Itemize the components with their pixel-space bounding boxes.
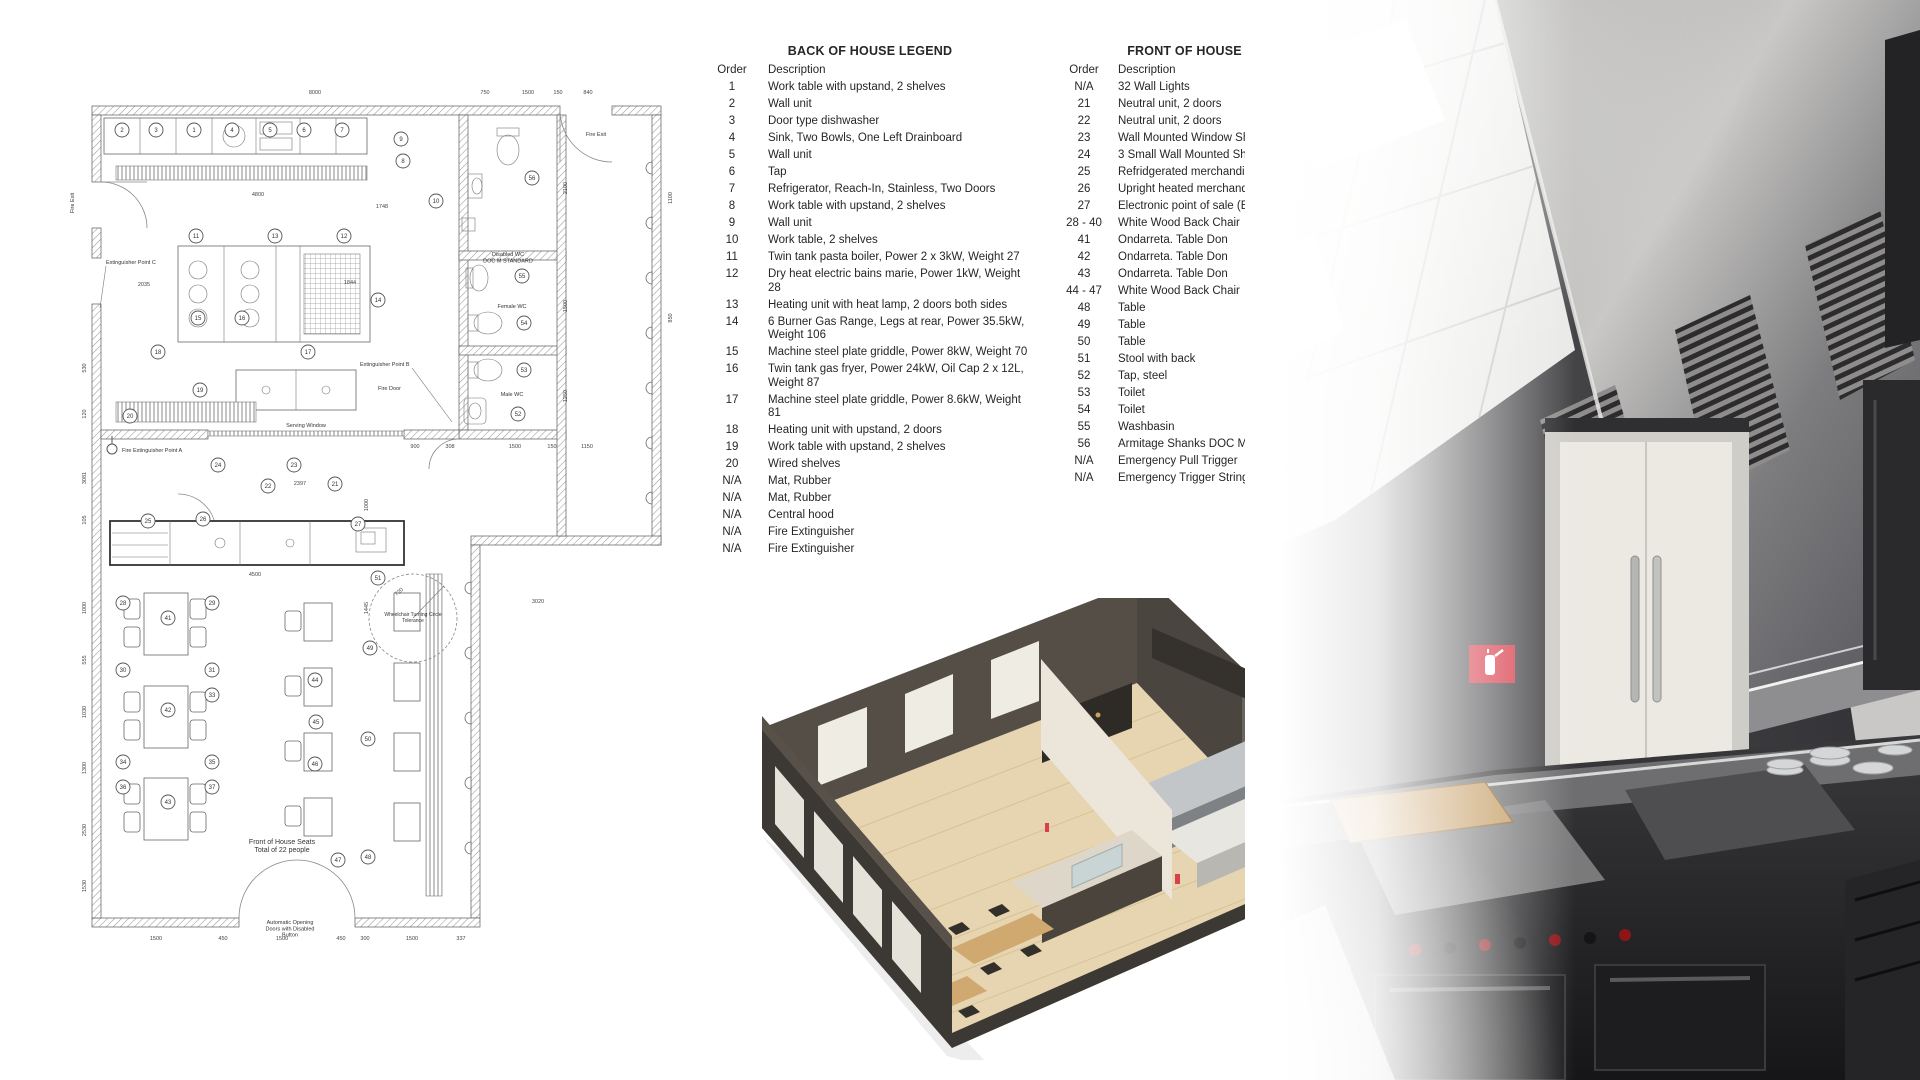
plan-dimension: 120 [82,409,88,418]
plan-item-number: 55 [515,269,529,283]
legend-row-description: Mat, Rubber [768,475,1036,489]
legend-rows: 1Work table with upstand, 2 shelves2Wall… [700,81,1040,557]
legend-row-order: 12 [700,268,764,295]
legend-row-order: 10 [700,234,764,248]
svg-text:54: 54 [521,321,528,327]
legend-row: N/AFire Extinguisher [700,526,1040,540]
legend-row-description: 6 Burner Gas Range, Legs at rear, Power … [768,316,1036,343]
legend-row: 11Twin tank pasta boiler, Power 2 x 3kW,… [700,251,1040,265]
plan-item-number: 44 [308,673,322,687]
svg-text:28: 28 [120,601,127,607]
plan-item-number: 25 [141,514,155,528]
svg-text:43: 43 [165,800,172,806]
legend-row-description: Wired shelves [768,458,1036,472]
svg-text:33: 33 [209,693,216,699]
plan-item-number: 34 [116,755,130,769]
legend-row-order: 54 [1058,404,1110,418]
plan-item-number: 11 [189,229,203,243]
plan-item-number: 12 [337,229,351,243]
plan-item-number: 56 [525,171,539,185]
svg-text:35: 35 [209,760,216,766]
legend-row-order: 6 [700,166,764,180]
legend-row-description: Twin tank pasta boiler, Power 2 x 3kW, W… [768,251,1036,265]
legend-row-order: 41 [1058,234,1110,248]
legend-row-order: N/A [700,492,764,506]
legend-row: 20Wired shelves [700,458,1040,472]
plan-item-number: 9 [394,132,408,146]
legend-row-order: 3 [700,115,764,129]
legend-row-order: 49 [1058,319,1110,333]
plan-item-number: 23 [287,458,301,472]
plan-label: Fire Exit [586,132,607,138]
legend-row-order: 16 [700,363,764,390]
plan-dimension: 1500 [563,300,569,312]
plan-item-number: 5 [263,123,277,137]
legend-row-order: 18 [700,424,764,438]
svg-text:16: 16 [239,316,246,322]
gas-grates [1845,860,1920,1080]
plan-label: Extinguisher Point B [360,362,410,368]
svg-text:25: 25 [145,519,152,525]
legend-row: 4Sink, Two Bowls, One Left Drainboard [700,132,1040,146]
legend-header: Order Description [700,64,1040,78]
legend-row: 13Heating unit with heat lamp, 2 doors b… [700,299,1040,313]
svg-text:17: 17 [305,350,312,356]
svg-text:48: 48 [365,855,372,861]
plan-kitchen-equipment [100,118,452,565]
legend-row-order: 52 [1058,370,1110,384]
plan-item-number: 3 [149,123,163,137]
design-board: Fire ExitFire ExitExtinguisher Point CEx… [0,0,1920,1080]
plan-item-number: 36 [116,780,130,794]
plan-dimension: 2530 [82,824,88,836]
svg-text:47: 47 [335,858,342,864]
legend-row-order: 15 [700,346,764,360]
svg-text:30: 30 [120,668,127,674]
plan-item-number: 49 [363,641,377,655]
legend-row-order: 17 [700,394,764,421]
svg-text:50: 50 [365,737,372,743]
legend-row: 7Refrigerator, Reach-In, Stainless, Two … [700,183,1040,197]
svg-text:15: 15 [195,316,202,322]
plan-item-number: 20 [123,409,137,423]
legend-row-description: Machine steel plate griddle, Power 8kW, … [768,346,1036,360]
plan-dimension: 308 [445,444,454,450]
legend-row-order: N/A [700,543,764,557]
plan-item-number: 16 [235,311,249,325]
legend-order-header: Order [700,64,764,78]
legend-row-description: Work table with upstand, 2 shelves [768,441,1036,455]
plan-dimension: 4800 [252,192,264,198]
plan-label: Extinguisher Point C [106,260,156,266]
svg-text:13: 13 [272,234,279,240]
legend-row-description: Heating unit with upstand, 2 doors [768,424,1036,438]
legend-row: 17Machine steel plate griddle, Power 8.6… [700,394,1040,421]
legend-row-order: 13 [700,299,764,313]
plan-dimension: 1445 [364,602,370,614]
plan-dimension: 1500 [276,936,288,942]
legend-row-description: Door type dishwasher [768,115,1036,129]
svg-text:45: 45 [313,720,320,726]
legend-row-description: Wall unit [768,217,1036,231]
plan-dimension: 8000 [309,90,321,96]
svg-text:55: 55 [519,274,526,280]
legend-row-order: 7 [700,183,764,197]
legend-title: BACK OF HOUSE LEGEND [700,44,1040,58]
plan-item-number: 6 [297,123,311,137]
plan-item-number: 51 [371,571,385,585]
legend-row-order: 1 [700,81,764,95]
legend-row-order: 26 [1058,183,1110,197]
plan-dimension: 300 [360,936,369,942]
legend-row-order: N/A [700,526,764,540]
plan-dimension: 1030 [82,706,88,718]
plan-item-number: 10 [429,194,443,208]
legend-row-order: 28 - 40 [1058,217,1110,231]
plan-label: Front of House SeatsTotal of 22 people [249,839,316,854]
svg-text:53: 53 [521,368,528,374]
legend-row-order: 44 - 47 [1058,285,1110,299]
plan-item-number: 37 [205,780,219,794]
plan-dimension: 1500 [509,444,521,450]
plan-dimension: 1844 [344,280,356,286]
plan-dimension: 150 [553,90,562,96]
plan-dimension: 337 [456,936,465,942]
legend-row: 19Work table with upstand, 2 shelves [700,441,1040,455]
svg-text:51: 51 [375,576,382,582]
plan-dimension: 1500 [406,936,418,942]
svg-text:21: 21 [332,482,339,488]
legend-row-description: Wall unit [768,98,1036,112]
plan-item-number: 7 [335,123,349,137]
plan-label: Male WC [501,392,524,398]
legend-row-description: Wall unit [768,149,1036,163]
svg-text:11: 11 [193,234,200,240]
legend-row-order: 53 [1058,387,1110,401]
plan-dimension: 850 [668,313,674,322]
plan-dimension: 450 [336,936,345,942]
legend-description-header: Description [768,64,1036,78]
plan-dimension: 450 [218,936,227,942]
plan-item-number: 24 [211,458,225,472]
svg-text:14: 14 [375,298,382,304]
legend-row-description: Tap [768,166,1036,180]
svg-text:31: 31 [209,668,216,674]
back-of-house-legend: BACK OF HOUSE LEGEND Order Description 1… [700,44,1040,560]
plan-dimension: 1748 [376,204,388,210]
legend-row-order: 25 [1058,166,1110,180]
plan-dimension: 2035 [138,282,150,288]
legend-row: 8Work table with upstand, 2 shelves [700,200,1040,214]
svg-text:27: 27 [355,522,362,528]
svg-text:46: 46 [312,762,319,768]
legend-row-description: Mat, Rubber [768,492,1036,506]
plan-item-number: 31 [205,663,219,677]
plan-label: Fire Extinguisher Point A [122,448,183,454]
legend-row-description: Sink, Two Bowls, One Left Drainboard [768,132,1036,146]
plan-item-number: 47 [331,853,345,867]
legend-row-order: 51 [1058,353,1110,367]
plan-item-number: 1 [187,123,201,137]
legend-row: N/ACentral hood [700,509,1040,523]
plan-item-number: 14 [371,293,385,307]
legend-row: 5Wall unit [700,149,1040,163]
legend-row-description: Machine steel plate griddle, Power 8.6kW… [768,394,1036,421]
plan-label: Serving Window [286,423,326,429]
plan-item-number: 2 [115,123,129,137]
plan-label: Fire Door [378,386,401,392]
plan-item-number: 28 [116,596,130,610]
svg-text:23: 23 [291,463,298,469]
svg-text:10: 10 [433,199,440,205]
svg-text:26: 26 [200,517,207,523]
plan-item-number: 54 [517,316,531,330]
legend-row: 6Tap [700,166,1040,180]
plan-dimension: 1100 [668,192,674,204]
plan-dimension: 1150 [581,444,593,450]
svg-text:22: 22 [265,484,272,490]
legend-row-order: N/A [1058,81,1110,95]
svg-text:49: 49 [367,646,374,652]
plan-dimension: 750 [480,90,489,96]
kitchen-photo [1245,0,1920,1080]
legend-row-description: Fire Extinguisher [768,526,1036,540]
legend-row: 9Wall unit [700,217,1040,231]
plan-dimension: 2397 [294,481,306,487]
legend-row-order: 48 [1058,302,1110,316]
floor-plan: Fire ExitFire ExitExtinguisher Point CEx… [60,18,680,978]
plan-dimension: 3081 [82,472,88,484]
legend-row-order: 11 [700,251,764,265]
legend-row-description: Fire Extinguisher [768,543,1036,557]
legend-row-order: N/A [700,475,764,489]
plan-item-number: 48 [361,850,375,864]
legend-row: N/AMat, Rubber [700,475,1040,489]
svg-text:29: 29 [209,601,216,607]
svg-text:56: 56 [529,176,536,182]
legend-row-order: 50 [1058,336,1110,350]
legend-row-order: 4 [700,132,764,146]
plan-item-number: 50 [361,732,375,746]
svg-text:20: 20 [127,414,134,420]
legend-row: 3Door type dishwasher [700,115,1040,129]
plan-item-number: 17 [301,345,315,359]
legend-row: 12Dry heat electric bains marie, Power 1… [700,268,1040,295]
plan-item-number: 4 [225,123,239,137]
legend-row-order: 19 [700,441,764,455]
plan-dimension: 105 [82,515,88,524]
plan-item-number: 33 [205,688,219,702]
plan-item-number: 19 [193,383,207,397]
legend-row-description: Work table, 2 shelves [768,234,1036,248]
legend-row-order: 14 [700,316,764,343]
legend-row-order: 27 [1058,200,1110,214]
legend-row: 2Wall unit [700,98,1040,112]
plan-dimension: 2100 [563,182,569,194]
legend-row-description: Central hood [768,509,1036,523]
plan-label: Fire Exit [70,192,76,213]
svg-text:34: 34 [120,760,127,766]
plan-dimension: 840 [583,90,592,96]
plan-item-number: 26 [196,512,210,526]
photo-fade-overlay [1245,0,1575,1080]
plan-item-number: 53 [517,363,531,377]
plan-dimension: 1500 [522,90,534,96]
legend-row: 146 Burner Gas Range, Legs at rear, Powe… [700,316,1040,343]
plan-dimension: 1000 [82,602,88,614]
legend-row-order: 5 [700,149,764,163]
plan-item-number: 46 [308,757,322,771]
plan-dimension: 530 [82,363,88,372]
legend-row-order: 56 [1058,438,1110,452]
legend-row-description: Heating unit with heat lamp, 2 doors bot… [768,299,1036,313]
legend-row: N/AFire Extinguisher [700,543,1040,557]
plan-item-number: 22 [261,479,275,493]
legend-row-description: Refrigerator, Reach-In, Stainless, Two D… [768,183,1036,197]
plan-item-number: 27 [351,517,365,531]
svg-text:52: 52 [515,412,522,418]
plan-item-number: 8 [396,154,410,168]
legend-row: 10Work table, 2 shelves [700,234,1040,248]
plan-item-number: 15 [191,311,205,325]
plan-dimension: 1300 [82,762,88,774]
legend-row-order: 8 [700,200,764,214]
plan-item-number: 18 [151,345,165,359]
legend-row-description: Work table with upstand, 2 shelves [768,81,1036,95]
plan-item-number: 45 [309,715,323,729]
plan-item-number: 41 [161,611,175,625]
legend-row: 18Heating unit with upstand, 2 doors [700,424,1040,438]
legend-row-description: Twin tank gas fryer, Power 24kW, Oil Cap… [768,363,1036,390]
legend-order-header: Order [1058,64,1110,78]
plan-label: Automatic OpeningDoors with DisabledButt… [266,920,315,939]
legend-row: 16Twin tank gas fryer, Power 24kW, Oil C… [700,363,1040,390]
svg-text:36: 36 [120,785,127,791]
legend-row-order: 22 [1058,115,1110,129]
plan-item-number: 13 [268,229,282,243]
legend-row: N/AMat, Rubber [700,492,1040,506]
svg-text:44: 44 [312,678,319,684]
legend-row-order: 21 [1058,98,1110,112]
svg-text:42: 42 [165,708,172,714]
plan-dimension: 1530 [82,880,88,892]
plan-dimension: 3020 [532,599,544,605]
plan-dimension: 1500 [150,936,162,942]
plan-item-number: 29 [205,596,219,610]
plan-item-number: 35 [205,755,219,769]
plan-dimension: 555 [82,655,88,664]
svg-text:24: 24 [215,463,222,469]
svg-text:12: 12 [341,234,348,240]
svg-text:41: 41 [165,616,172,622]
legend-row-order: 9 [700,217,764,231]
legend-row-order: N/A [1058,455,1110,469]
plan-dimension: 1000 [364,499,370,511]
plan-dimension: 900 [410,444,419,450]
legend-row-order: 20 [700,458,764,472]
legend-row-order: 2 [700,98,764,112]
svg-text:37: 37 [209,785,216,791]
legend-row-order: 42 [1058,251,1110,265]
legend-row-order: 55 [1058,421,1110,435]
legend-row-order: N/A [1058,472,1110,486]
plan-dimension: 4500 [249,572,261,578]
svg-text:18: 18 [155,350,162,356]
plan-item-number: 52 [511,407,525,421]
plan-item-number: 42 [161,703,175,717]
plan-item-number: 43 [161,795,175,809]
legend-row-description: Dry heat electric bains marie, Power 1kW… [768,268,1036,295]
plan-label: Female WC [497,304,526,310]
plan-item-number: 30 [116,663,130,677]
legend-row-order: 23 [1058,132,1110,146]
legend-row: 15Machine steel plate griddle, Power 8kW… [700,346,1040,360]
plan-dimension: 150 [547,444,556,450]
legend-row-order: 43 [1058,268,1110,282]
svg-text:19: 19 [197,388,204,394]
legend-row-order: 24 [1058,149,1110,163]
legend-row-description: Work table with upstand, 2 shelves [768,200,1036,214]
plan-item-number: 21 [328,477,342,491]
legend-row: 1Work table with upstand, 2 shelves [700,81,1040,95]
plan-dimension: 1250 [563,390,569,402]
plan-wc-fixtures [462,128,519,424]
legend-row-order: N/A [700,509,764,523]
